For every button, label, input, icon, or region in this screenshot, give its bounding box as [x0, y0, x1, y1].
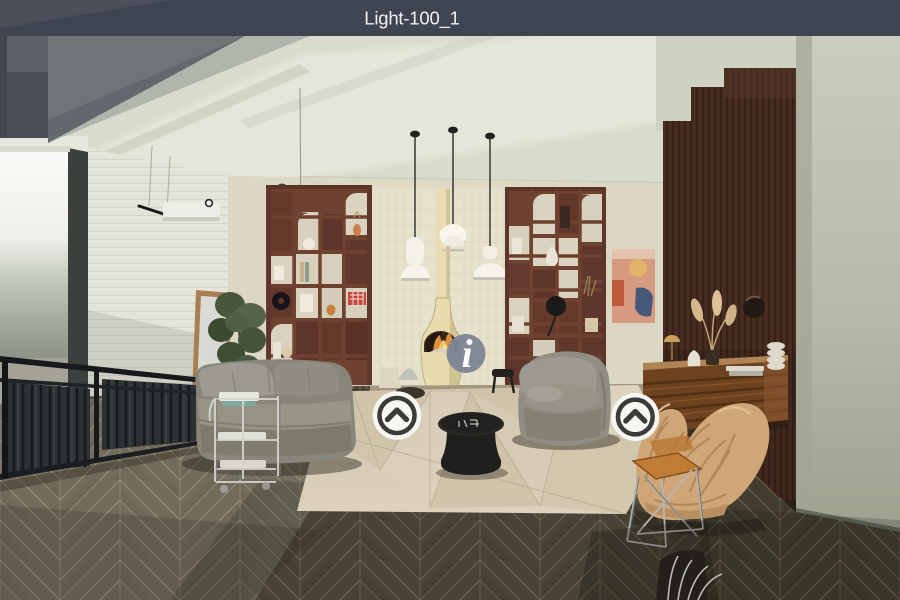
svg-text:Light-100_1: Light-100_1: [364, 8, 460, 30]
svg-text:i: i: [461, 331, 472, 376]
